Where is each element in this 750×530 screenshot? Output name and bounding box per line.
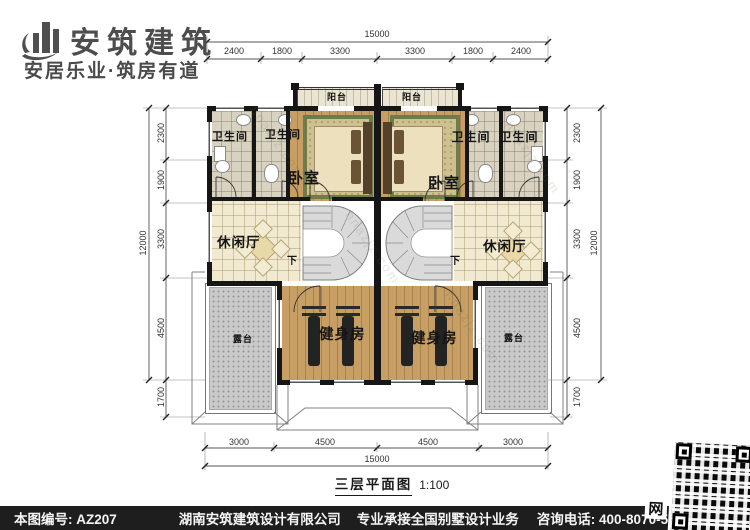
room-label-lounge-left: 休闲厅 — [217, 231, 261, 251]
terrace-door-left — [277, 300, 282, 348]
drawing-scale: 1:100 — [419, 478, 449, 492]
balcony-post — [291, 83, 299, 90]
dim-left-total: 12000 — [138, 226, 148, 260]
window — [471, 106, 497, 111]
wall-bedroom-bottom-right — [445, 197, 465, 201]
dim-bottom-seg: 3000 — [222, 437, 256, 447]
bed-pillow — [394, 160, 404, 184]
wall-lounge-bottom-left — [207, 281, 282, 286]
footer-bar: 本图编号: AZ207 湖南安筑建筑设计有限公司 专业承接全国别墅设计业务 咨询… — [0, 506, 750, 530]
toilet — [527, 160, 542, 173]
dim-left-seg: 4500 — [156, 311, 166, 345]
wall-bath-divider-right — [499, 108, 503, 198]
terrace-door-right — [473, 300, 478, 348]
window — [290, 380, 320, 385]
balcony-door-left — [318, 106, 354, 111]
toilet — [215, 160, 230, 173]
wall-bath-bottom-right — [465, 197, 548, 201]
qr-finder — [672, 513, 689, 530]
bed-headboard-left — [363, 122, 372, 194]
web-badge: 网 — [644, 496, 667, 519]
window — [334, 380, 364, 385]
window — [391, 380, 421, 385]
room-label-bedroom-right: 卧室 — [428, 172, 460, 193]
dim-left-seg: 3300 — [156, 222, 166, 256]
room-label-bath-inner-right: 卫生间 — [447, 128, 495, 145]
room-label-balcony-right: 阳台 — [397, 90, 427, 103]
dim-right-seg: 1700 — [572, 380, 582, 414]
dim-left-seg: 1900 — [156, 163, 166, 197]
toilet — [264, 164, 279, 183]
dim-top-seg: 2400 — [504, 46, 538, 56]
bed-headboard-right — [383, 122, 392, 194]
dim-bottom-seg: 4500 — [308, 437, 342, 447]
window — [511, 106, 539, 111]
stairwell-right — [381, 201, 454, 281]
wall-bath-bedroom-right — [465, 108, 469, 198]
dim-right-seg: 4500 — [572, 311, 582, 345]
room-label-bath-outer-left: 卫生间 — [206, 128, 254, 144]
wall-party — [374, 84, 381, 385]
stairs-down-label-right: 下 — [450, 252, 461, 267]
company-fullname: 湖南安筑建筑设计有限公司 — [179, 508, 341, 528]
window — [435, 380, 465, 385]
dim-right-seg: 2300 — [572, 116, 582, 150]
stairs-down-label-left: 下 — [287, 252, 298, 267]
room-label-bath-inner-left: 卫生间 — [259, 126, 307, 142]
qr-finder — [735, 446, 750, 463]
dim-bottom-total: 15000 — [360, 454, 394, 464]
balcony-post — [456, 83, 464, 90]
window — [207, 212, 212, 262]
stairwell-left — [301, 201, 374, 281]
dim-top-seg: 3300 — [323, 46, 357, 56]
dim-top-seg: 3300 — [398, 46, 432, 56]
gym-rack — [395, 306, 419, 309]
wall-bath-bottom-left — [207, 197, 290, 201]
wall-bedroom-bottom-left — [290, 197, 310, 201]
gym-rack — [302, 306, 326, 309]
dim-left-seg: 2300 — [156, 116, 166, 150]
room-label-gym-right: 健身房 — [411, 327, 458, 348]
dim-right-seg: 1900 — [572, 163, 582, 197]
wall-bedroom-bottom-left — [332, 197, 378, 201]
company-slogan: 专业承接全国别墅设计业务 — [357, 508, 519, 528]
drawing-caption: 三层平面图 1:100 — [322, 473, 462, 496]
dim-top-seg: 2400 — [217, 46, 251, 56]
dim-right-seg: 3300 — [572, 222, 582, 256]
balcony-door-right — [401, 106, 437, 111]
room-label-bath-outer-right: 卫生间 — [495, 128, 543, 145]
sink — [506, 114, 521, 126]
qr-finder — [675, 443, 692, 460]
toilet — [478, 164, 493, 183]
qr-modules — [671, 442, 750, 530]
room-label-gym-left: 健身房 — [319, 323, 366, 344]
terrace-right — [481, 283, 552, 414]
sink — [236, 114, 251, 126]
room-label-terrace-right: 露台 — [499, 331, 529, 344]
room-label-balcony-left: 阳台 — [322, 90, 352, 103]
gym-rack — [429, 306, 453, 309]
bed-pillow — [394, 130, 404, 154]
floor-plan-page: 安筑建筑 安居乐业·筑房有道 — [0, 0, 750, 530]
wall-bedroom-bottom-right — [377, 197, 423, 201]
terrace-left — [205, 283, 276, 414]
dim-right-total: 12000 — [589, 226, 599, 260]
window — [543, 122, 548, 156]
drawing-title: 三层平面图 — [335, 473, 413, 496]
window — [216, 106, 244, 111]
bed-pillow — [351, 160, 361, 184]
qr-code — [668, 439, 750, 530]
dim-bottom-seg: 4500 — [411, 437, 445, 447]
dim-top-total: 15000 — [360, 29, 394, 39]
window — [258, 106, 284, 111]
room-label-lounge-right: 休闲厅 — [483, 235, 527, 255]
bed-pillow — [351, 130, 361, 154]
drawing-number: 本图编号: AZ207 — [14, 508, 117, 528]
dim-top-seg: 1800 — [456, 46, 490, 56]
dim-left-seg: 1700 — [156, 380, 166, 414]
dim-bottom-seg: 3000 — [496, 437, 530, 447]
company-tagline: 安居乐业·筑房有道 — [24, 56, 200, 83]
wall-lounge-bottom-right — [473, 281, 548, 286]
wall-bath-divider-left — [252, 108, 256, 198]
gym-rack — [336, 306, 360, 309]
room-label-bedroom-left: 卧室 — [288, 167, 320, 188]
dim-top-seg: 1800 — [265, 46, 299, 56]
room-label-terrace-left: 露台 — [228, 332, 258, 345]
window — [543, 212, 548, 262]
